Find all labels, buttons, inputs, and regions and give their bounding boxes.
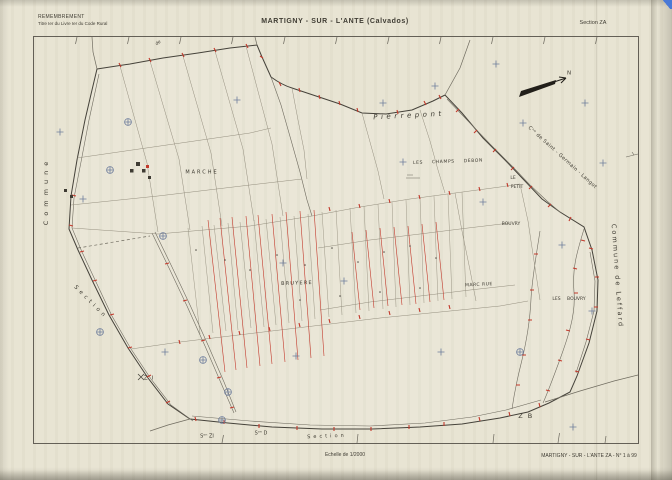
north-arrow — [519, 77, 566, 97]
section-boundary — [69, 45, 598, 429]
procedure-reference: Titre Ier du Livre Ier du Code Rural — [38, 21, 107, 27]
scale-note: Echelle de 1/2000 — [325, 452, 365, 458]
sheet-reference: MARTIGNY - SUR - L'ANTE ZA - N° 1 à 99 — [541, 453, 637, 459]
sheet-title: MARTIGNY - SUR - L'ANTE (Calvados) — [261, 18, 409, 27]
map-drawing — [0, 0, 672, 480]
cadastral-map-sheet: PierrepontdeCⁿᵉ de Saint - Germain - Lan… — [0, 0, 672, 480]
section-heading: Section ZA — [580, 20, 607, 27]
procedure-note: REMEMBREMENT — [38, 14, 85, 20]
